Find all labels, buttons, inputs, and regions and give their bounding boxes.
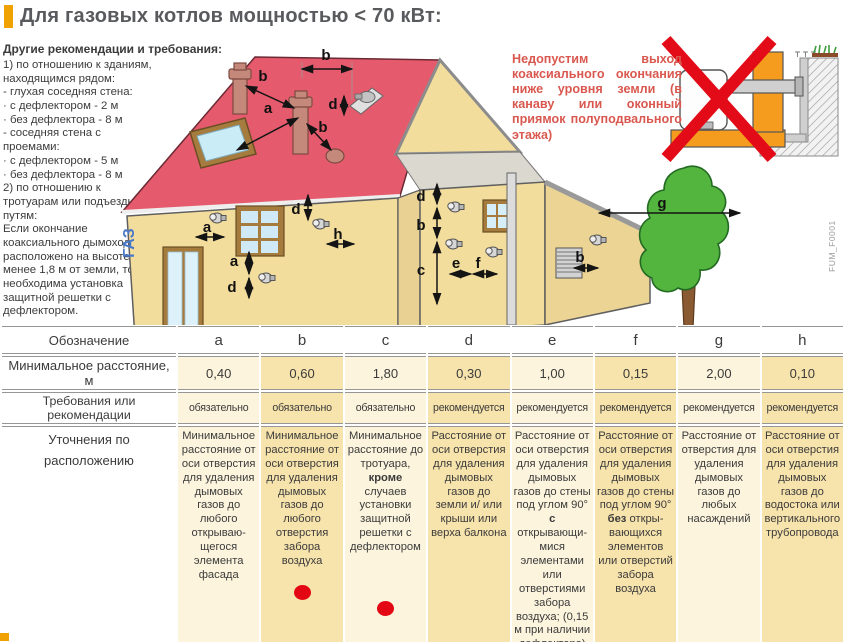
dimension-label-b: b: [318, 119, 327, 136]
dimension-label-d: d: [416, 188, 425, 205]
table-cell: обязательно: [261, 392, 342, 424]
chimney: [289, 91, 312, 154]
dimension-label-h: h: [333, 226, 342, 243]
row-label: Минимальное расстояние, м: [2, 356, 176, 390]
row-label: Требования или рекомендации: [2, 392, 176, 424]
table-cell: Минимальное расстояние от оси отверстия …: [178, 426, 259, 642]
table-cell: 0,30: [428, 356, 509, 390]
table-cell: h: [762, 326, 843, 354]
table-cell: 0,60: [261, 356, 342, 390]
table-cell: 2,00: [678, 356, 759, 390]
table-cell: Расстояние от оси отверстия для удаления…: [512, 426, 593, 642]
table-cell: Расстояние от оси отверстия для удаления…: [762, 426, 843, 642]
next-section-marker: [0, 633, 9, 641]
gas-pipe-label: ГАЗ: [121, 228, 138, 258]
dimension-label-e: e: [452, 255, 460, 272]
dimension-label-b: b: [416, 217, 425, 234]
table-cell: рекомендуется: [595, 392, 676, 424]
pipe-end: [795, 77, 803, 96]
tree-trunk: [682, 286, 695, 325]
table-cell: c: [345, 326, 426, 354]
table-row: Требования или рекомендацииобязательнооб…: [2, 392, 843, 424]
table-cell: Расстояние от оси отверстия для удаления…: [595, 426, 676, 642]
table-cell: рекомендуется: [678, 392, 759, 424]
dimension-label-c: c: [417, 262, 425, 279]
table-cell: обязательно: [345, 392, 426, 424]
table-cell: 0,40: [178, 356, 259, 390]
table-cell: d: [428, 326, 509, 354]
pit-wall: [800, 58, 808, 142]
red-dot: [294, 585, 311, 600]
dimension-label-b: b: [321, 47, 330, 64]
dimension-label-a: a: [230, 253, 239, 270]
table-cell: обязательно: [178, 392, 259, 424]
dimension-label-d: d: [328, 96, 337, 113]
dimension-label-a: a: [264, 100, 273, 117]
roof-vent: [326, 149, 344, 163]
downpipe: [507, 173, 516, 325]
table-cell: b: [261, 326, 342, 354]
corner-wall: [398, 190, 420, 325]
six-pane-window: [236, 206, 284, 256]
soil-line: [812, 53, 838, 57]
table-cell: e: [512, 326, 593, 354]
dimension-label-b: b: [258, 68, 267, 85]
grass: [814, 45, 836, 53]
roof: [122, 57, 440, 212]
table-row: Обозначениеabcdefgh: [2, 326, 843, 354]
table-cell: рекомендуется: [512, 392, 593, 424]
row-label: Обозначение: [2, 326, 176, 354]
tree-canopy: [640, 166, 729, 291]
figure-code: FUM_F0001: [827, 220, 837, 272]
tree: [640, 166, 729, 325]
table-cell: a: [178, 326, 259, 354]
dimension-label-d: d: [227, 279, 236, 296]
tall-window: [163, 247, 203, 325]
dimension-label-g: g: [657, 195, 666, 212]
dimension-label-b: b: [575, 249, 584, 266]
table-row: Минимальное расстояние, м0,400,601,800,3…: [2, 356, 843, 390]
table-cell: g: [678, 326, 759, 354]
table-cell: f: [595, 326, 676, 354]
table-cell: Расстояние от отверстия для удаления дым…: [678, 426, 759, 642]
forbidden-illustration: [666, 40, 838, 158]
spec-table: ОбозначениеabcdefghМинимальное расстояни…: [0, 324, 845, 642]
table-row: Уточнения по расположениюМинимальное рас…: [2, 426, 843, 642]
table-cell: рекомендуется: [428, 392, 509, 424]
diagram-svg: ГАЗ FUM_F0001 bbabdad: [0, 36, 845, 325]
row-label: Уточнения по расположению: [2, 426, 176, 642]
page-root: Для газовых котлов мощностью < 70 кВт: Д…: [0, 0, 845, 642]
warning-text: Недопустим выход коаксиального окончания…: [512, 52, 682, 143]
table-cell: 1,80: [345, 356, 426, 390]
dimension-label-d: d: [291, 201, 300, 218]
page-header: Для газовых котлов мощностью < 70 кВт:: [4, 5, 442, 28]
table-cell: Минимальное расстояние до тротуа­ра, кро…: [345, 426, 426, 642]
red-dot: [377, 601, 394, 616]
table-cell: рекомендуется: [762, 392, 843, 424]
table-cell: Минимальное расстояние от оси отверстия …: [261, 426, 342, 642]
table-cell: 0,10: [762, 356, 843, 390]
page-title: Для газовых котлов мощностью < 70 кВт:: [20, 5, 442, 28]
table-cell: 1,00: [512, 356, 593, 390]
table-cell: Расстояние от оси отверстия для удаления…: [428, 426, 509, 642]
dimension-label-a: a: [203, 219, 212, 236]
table-cell: 0,15: [595, 356, 676, 390]
section-marker-icon: [4, 5, 13, 28]
